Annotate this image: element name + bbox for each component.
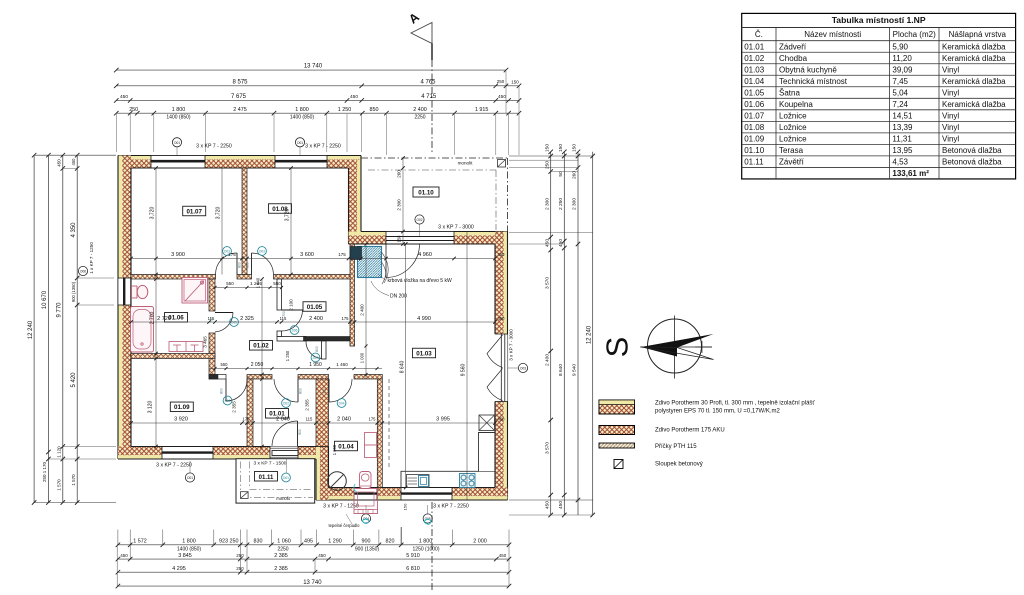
svg-text:O02: O02 — [416, 218, 422, 222]
svg-text:1 290: 1 290 — [328, 539, 342, 545]
svg-text:Šatna: Šatna — [779, 89, 800, 98]
svg-text:150: 150 — [572, 144, 578, 152]
svg-text:2 300: 2 300 — [397, 199, 402, 211]
svg-text:Příčky PTH 115: Příčky PTH 115 — [655, 444, 697, 450]
svg-text:Sloupek betonový: Sloupek betonový — [655, 462, 703, 468]
svg-text:O01: O01 — [297, 141, 303, 145]
svg-text:550: 550 — [273, 281, 281, 286]
svg-text:3 465: 3 465 — [203, 336, 208, 348]
svg-text:250: 250 — [129, 107, 138, 113]
svg-text:3 845: 3 845 — [178, 553, 192, 559]
svg-text:3,720: 3,720 — [150, 207, 156, 220]
svg-text:2 400: 2 400 — [544, 354, 550, 366]
svg-text:175: 175 — [243, 417, 251, 422]
svg-text:monolit: monolit — [276, 496, 290, 501]
svg-text:Zdivo Porotherm 30 Profi, tl.: Zdivo Porotherm 30 Profi, tl. 300 mm , t… — [655, 401, 815, 407]
svg-text:8 640: 8 640 — [558, 364, 564, 376]
svg-text:Ložnice: Ložnice — [779, 112, 807, 121]
svg-text:4 295: 4 295 — [172, 566, 186, 572]
svg-text:S: S — [600, 337, 635, 358]
svg-text:Betonová dlažba: Betonová dlažba — [942, 158, 1002, 167]
svg-text:Vinyl: Vinyl — [942, 112, 959, 121]
svg-text:1 050: 1 050 — [332, 444, 337, 455]
svg-text:Zádveří: Zádveří — [779, 43, 807, 52]
svg-text:820: 820 — [386, 539, 395, 545]
svg-text:450: 450 — [558, 239, 564, 247]
svg-text:3,720: 3,720 — [285, 209, 291, 222]
svg-text:D05: D05 — [231, 321, 237, 325]
svg-text:7,45: 7,45 — [892, 77, 908, 86]
svg-text:9 770: 9 770 — [57, 302, 63, 318]
svg-text:01.04: 01.04 — [338, 443, 354, 450]
svg-text:5 420: 5 420 — [71, 372, 77, 388]
svg-text:Závětří: Závětří — [779, 158, 805, 167]
svg-text:13 740: 13 740 — [304, 64, 323, 70]
svg-text:01.11: 01.11 — [744, 158, 764, 167]
svg-text:01.04: 01.04 — [744, 77, 765, 86]
svg-text:1 950: 1 950 — [309, 362, 322, 368]
svg-text:11,31: 11,31 — [892, 135, 912, 144]
svg-text:450: 450 — [498, 252, 506, 257]
svg-text:Keramická dlažba: Keramická dlažba — [942, 43, 1006, 52]
svg-text:1 800: 1 800 — [295, 107, 309, 113]
svg-text:Obytná kuchyně: Obytná kuchyně — [779, 66, 837, 75]
svg-text:O06: O06 — [80, 270, 86, 274]
svg-text:1 250: 1 250 — [338, 107, 352, 113]
svg-text:900 (1350): 900 (1350) — [71, 281, 76, 302]
svg-text:150: 150 — [403, 503, 408, 510]
svg-text:1 800: 1 800 — [419, 539, 433, 545]
svg-text:6 810: 6 810 — [406, 566, 420, 572]
svg-text:1 800: 1 800 — [172, 107, 186, 113]
svg-text:13,39: 13,39 — [892, 123, 913, 132]
svg-text:2 250: 2 250 — [558, 198, 564, 210]
svg-text:450: 450 — [498, 94, 506, 100]
svg-text:600: 600 — [315, 346, 319, 352]
svg-text:01.10: 01.10 — [744, 146, 765, 155]
svg-text:1 000: 1 000 — [360, 352, 365, 363]
svg-text:175: 175 — [338, 252, 346, 257]
svg-text:923 250: 923 250 — [219, 539, 239, 545]
svg-text:D06: D06 — [292, 329, 298, 333]
svg-text:250: 250 — [497, 79, 505, 84]
svg-text:450: 450 — [120, 94, 128, 100]
svg-text:3 x KP 7 - 3000: 3 x KP 7 - 3000 — [509, 329, 514, 361]
svg-text:3 x KP 7 - 2250: 3 x KP 7 - 2250 — [433, 504, 469, 510]
svg-text:1400 (850): 1400 (850) — [166, 115, 191, 121]
svg-text:Zdivo Porotherm 175 AKU: Zdivo Porotherm 175 AKU — [655, 428, 725, 434]
svg-text:450: 450 — [71, 158, 76, 166]
svg-text:01.06: 01.06 — [744, 100, 765, 109]
svg-text:3 920: 3 920 — [174, 417, 188, 423]
svg-text:O03: O03 — [520, 367, 526, 371]
svg-text:1400 (850): 1400 (850) — [177, 547, 202, 553]
svg-text:3 x KP 7 - 1500: 3 x KP 7 - 1500 — [254, 460, 287, 466]
svg-text:3,720: 3,720 — [216, 207, 222, 220]
svg-text:1 440: 1 440 — [256, 277, 261, 288]
svg-text:2250: 2250 — [414, 115, 425, 121]
svg-text:450: 450 — [498, 316, 506, 321]
svg-text:01.05: 01.05 — [744, 89, 765, 98]
svg-text:2 355: 2 355 — [231, 401, 236, 413]
svg-text:01.10: 01.10 — [418, 190, 434, 197]
svg-text:450: 450 — [544, 239, 550, 247]
svg-text:Vinyl: Vinyl — [942, 66, 959, 75]
svg-text:01.08: 01.08 — [744, 123, 765, 132]
svg-text:260: 260 — [572, 171, 578, 179]
svg-text:Betonová dlažba: Betonová dlažba — [942, 146, 1002, 155]
svg-text:3 570: 3 570 — [544, 442, 550, 454]
svg-text:2 400: 2 400 — [413, 107, 427, 113]
svg-text:3 x KP 7 - 2250: 3 x KP 7 - 2250 — [305, 144, 341, 150]
svg-text:850: 850 — [370, 107, 379, 113]
svg-text:495: 495 — [304, 539, 313, 545]
svg-text:800: 800 — [379, 252, 383, 258]
svg-text:monolit: monolit — [458, 161, 474, 166]
svg-text:700: 700 — [323, 388, 327, 394]
svg-text:12 240: 12 240 — [586, 325, 592, 344]
svg-text:2 100: 2 100 — [289, 299, 294, 311]
svg-text:175: 175 — [342, 316, 350, 321]
svg-text:2 385: 2 385 — [274, 566, 288, 572]
svg-text:13 740: 13 740 — [303, 580, 322, 586]
svg-text:800: 800 — [299, 388, 303, 394]
svg-text:700: 700 — [210, 317, 214, 323]
svg-text:1 x KP 7 - 1250: 1 x KP 7 - 1250 — [89, 242, 94, 274]
svg-text:2 475: 2 475 — [233, 107, 247, 113]
svg-text:2 000: 2 000 — [473, 539, 487, 545]
svg-text:450: 450 — [544, 501, 550, 509]
svg-text:1 250: 1 250 — [285, 350, 290, 361]
svg-text:Technická místnost: Technická místnost — [779, 77, 848, 86]
svg-text:Vinyl: Vinyl — [942, 123, 959, 132]
svg-text:01.03: 01.03 — [416, 350, 432, 357]
svg-text:01.07: 01.07 — [186, 208, 202, 215]
svg-text:150: 150 — [511, 79, 519, 84]
svg-text:Plocha (m2): Plocha (m2) — [893, 30, 936, 39]
svg-text:Ložnice: Ložnice — [779, 135, 807, 144]
svg-text:D03: D03 — [259, 250, 265, 254]
svg-text:7,24: 7,24 — [892, 100, 908, 109]
svg-text:1250 (1000): 1250 (1000) — [413, 547, 440, 553]
svg-text:5 910: 5 910 — [406, 553, 420, 559]
svg-text:2 050: 2 050 — [251, 362, 264, 368]
svg-text:Vinyl: Vinyl — [942, 89, 959, 98]
svg-text:1 120: 1 120 — [57, 446, 62, 458]
svg-text:550: 550 — [226, 281, 234, 286]
svg-text:133,61 m²: 133,61 m² — [892, 169, 929, 178]
svg-text:2 325: 2 325 — [240, 316, 254, 322]
svg-text:800: 800 — [220, 388, 224, 394]
svg-text:2 300: 2 300 — [572, 198, 578, 210]
svg-text:2 400: 2 400 — [309, 316, 323, 322]
svg-text:1 570: 1 570 — [71, 474, 76, 486]
svg-text:D04: D04 — [225, 399, 231, 403]
svg-text:900: 900 — [298, 429, 302, 435]
svg-text:14,51: 14,51 — [892, 112, 913, 121]
svg-text:175: 175 — [369, 417, 377, 422]
svg-text:1 060: 1 060 — [277, 539, 291, 545]
svg-text:450: 450 — [558, 501, 564, 509]
svg-text:10 670: 10 670 — [42, 290, 48, 309]
svg-text:150: 150 — [558, 144, 564, 152]
svg-text:Název místnosti: Název místnosti — [804, 30, 861, 39]
svg-text:3 995: 3 995 — [436, 417, 450, 423]
svg-text:4 960: 4 960 — [418, 252, 432, 258]
svg-text:D04: D04 — [339, 402, 345, 406]
svg-text:450: 450 — [350, 94, 358, 100]
svg-text:krbová vložka na dřevo 5 kW: krbová vložka na dřevo 5 kW — [388, 278, 452, 284]
svg-text:550: 550 — [221, 362, 229, 367]
svg-text:01.02: 01.02 — [744, 54, 765, 63]
svg-text:Keramická dlažba: Keramická dlažba — [942, 77, 1006, 86]
svg-text:4 715: 4 715 — [421, 94, 437, 100]
svg-text:DN 200: DN 200 — [390, 294, 407, 300]
svg-text:260: 260 — [397, 170, 402, 178]
svg-text:50: 50 — [558, 171, 564, 177]
svg-text:polystyren EPS 70 tl. 150 mm,: polystyren EPS 70 tl. 150 mm, U =0,17W/K… — [655, 409, 781, 415]
svg-text:2250: 2250 — [277, 547, 288, 553]
svg-text:900: 900 — [362, 539, 371, 545]
svg-text:39,09: 39,09 — [892, 66, 913, 75]
svg-text:01.09: 01.09 — [174, 404, 190, 411]
svg-text:2 300: 2 300 — [544, 198, 550, 210]
svg-text:8 640: 8 640 — [399, 361, 405, 374]
svg-text:5,90: 5,90 — [892, 43, 908, 52]
svg-text:9 560: 9 560 — [461, 364, 467, 377]
svg-text:Nášlapná vrstva: Nášlapná vrstva — [949, 30, 1007, 39]
svg-text:3 x KP 7 - 3000: 3 x KP 7 - 3000 — [438, 225, 474, 231]
svg-text:1 460: 1 460 — [336, 362, 348, 367]
svg-text:D01: D01 — [283, 476, 289, 480]
svg-text:3 x KP 7 - 2250: 3 x KP 7 - 2250 — [196, 144, 232, 150]
svg-text:01.05: 01.05 — [307, 304, 323, 311]
svg-text:450: 450 — [318, 553, 326, 558]
svg-text:01.02: 01.02 — [253, 343, 269, 350]
svg-text:Ložnice: Ložnice — [779, 123, 807, 132]
svg-text:450: 450 — [57, 159, 62, 167]
svg-text:Chodba: Chodba — [779, 54, 808, 63]
svg-text:01.09: 01.09 — [744, 135, 765, 144]
svg-text:3 570: 3 570 — [544, 277, 550, 289]
svg-text:Keramická dlažba: Keramická dlažba — [942, 54, 1006, 63]
svg-text:2 040: 2 040 — [337, 417, 351, 423]
svg-text:2 700: 2 700 — [150, 312, 156, 325]
svg-text:D07: D07 — [313, 356, 319, 360]
svg-text:2 355: 2 355 — [305, 399, 310, 411]
svg-text:1 800: 1 800 — [182, 539, 196, 545]
svg-text:Koupelna: Koupelna — [779, 100, 813, 109]
svg-text:115: 115 — [306, 417, 313, 422]
svg-text:7 675: 7 675 — [231, 94, 247, 100]
svg-text:01.03: 01.03 — [744, 66, 765, 75]
svg-text:800: 800 — [238, 262, 242, 268]
svg-text:Vinyl: Vinyl — [942, 135, 959, 144]
svg-text:4,53: 4,53 — [892, 158, 908, 167]
svg-text:O01: O01 — [187, 476, 193, 480]
svg-text:tepelné čerpadlo: tepelné čerpadlo — [329, 523, 361, 528]
svg-text:700: 700 — [282, 311, 286, 317]
svg-text:1 570: 1 570 — [57, 479, 62, 491]
svg-text:Tabulka místností 1.NP: Tabulka místností 1.NP — [832, 15, 926, 25]
svg-text:900 (1350): 900 (1350) — [355, 547, 380, 553]
svg-text:12 240: 12 240 — [28, 320, 34, 339]
svg-text:800: 800 — [246, 262, 250, 268]
svg-text:450: 450 — [499, 553, 507, 558]
svg-text:450: 450 — [498, 417, 506, 422]
svg-text:4 350: 4 350 — [71, 222, 77, 238]
svg-text:2 720: 2 720 — [157, 316, 171, 322]
svg-text:01.07: 01.07 — [744, 112, 765, 121]
svg-text:9 540: 9 540 — [572, 364, 578, 376]
svg-text:3 x KP 7 - 2250: 3 x KP 7 - 2250 — [156, 463, 192, 469]
svg-text:2 040: 2 040 — [276, 417, 290, 423]
svg-text:3 600: 3 600 — [300, 252, 314, 258]
svg-text:1 915: 1 915 — [475, 107, 489, 113]
svg-text:5,04: 5,04 — [892, 89, 908, 98]
svg-text:1400 (850): 1400 (850) — [290, 115, 315, 121]
svg-text:250 1 170: 250 1 170 — [42, 461, 47, 482]
svg-text:01.01: 01.01 — [744, 43, 765, 52]
svg-text:8 575: 8 575 — [232, 79, 248, 85]
svg-text:Keramická dlažba: Keramická dlažba — [942, 100, 1006, 109]
svg-text:450: 450 — [120, 553, 128, 558]
svg-text:150: 150 — [397, 235, 402, 243]
svg-text:4 990: 4 990 — [417, 316, 431, 322]
svg-text:4 765: 4 765 — [420, 79, 436, 85]
svg-text:2 385: 2 385 — [274, 553, 288, 559]
svg-text:01.11: 01.11 — [259, 475, 274, 481]
svg-text:Č.: Č. — [755, 30, 763, 39]
svg-text:13,95: 13,95 — [892, 146, 913, 155]
svg-text:D02: D02 — [283, 402, 289, 406]
svg-text:1 572: 1 572 — [133, 539, 147, 545]
svg-text:150: 150 — [544, 144, 550, 152]
svg-text:3 120: 3 120 — [148, 401, 154, 414]
svg-text:3 900: 3 900 — [171, 252, 185, 258]
svg-text:11,20: 11,20 — [892, 54, 912, 63]
svg-text:2 400: 2 400 — [360, 304, 365, 316]
svg-text:175: 175 — [228, 252, 236, 257]
svg-text:830: 830 — [254, 539, 263, 545]
svg-text:O01: O01 — [174, 141, 180, 145]
svg-text:Terasa: Terasa — [779, 146, 804, 155]
